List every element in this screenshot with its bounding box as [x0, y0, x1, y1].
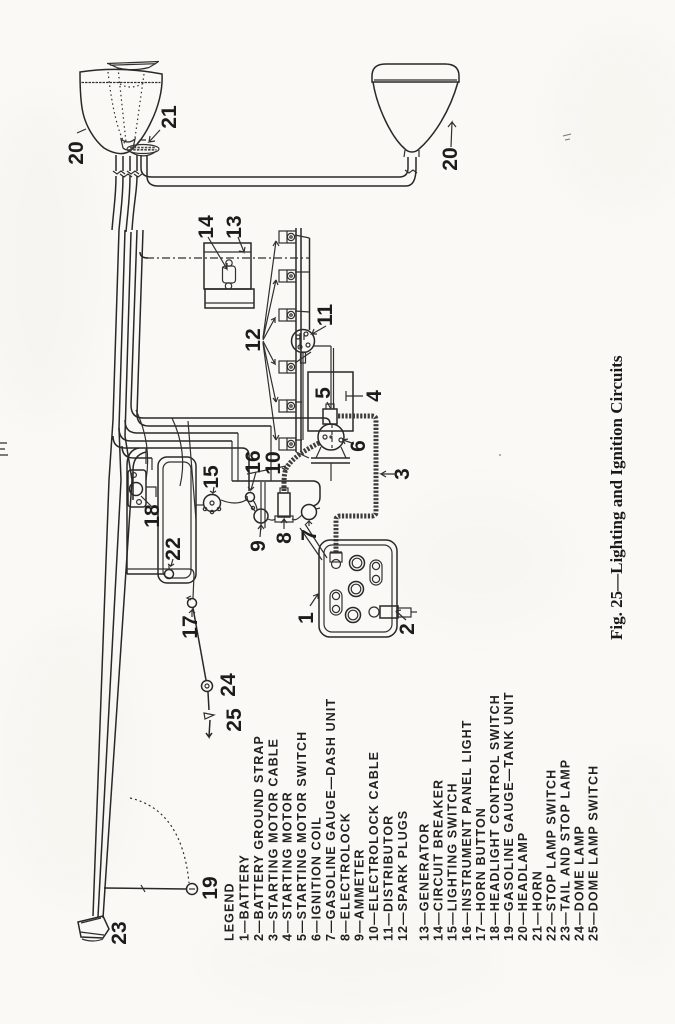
svg-text:12: 12: [242, 328, 265, 351]
svg-text:25—DOME LAMP SWITCH: 25—DOME LAMP SWITCH: [587, 765, 601, 941]
svg-text:24—DOME LAMP: 24—DOME LAMP: [573, 825, 587, 941]
svg-text:13: 13: [223, 215, 246, 238]
svg-text:LEGEND: LEGEND: [223, 882, 237, 941]
svg-text:14—CIRCUIT BREAKER: 14—CIRCUIT BREAKER: [432, 779, 446, 941]
svg-text:3—STARTING MOTOR CABLE: 3—STARTING MOTOR CABLE: [266, 738, 280, 941]
svg-text:4—STARTING MOTOR: 4—STARTING MOTOR: [281, 791, 295, 941]
svg-text:16—INSTRUMENT PANEL LIGHT: 16—INSTRUMENT PANEL LIGHT: [460, 720, 474, 942]
svg-text:5—STARTING MOTOR SWITCH: 5—STARTING MOTOR SWITCH: [295, 731, 309, 941]
svg-text:2—BATTERY GROUND STRAP: 2—BATTERY GROUND STRAP: [252, 735, 266, 941]
svg-text:6—IGNITION COIL: 6—IGNITION COIL: [310, 816, 324, 941]
svg-text:11—DISTRIBUTOR: 11—DISTRIBUTOR: [382, 815, 396, 941]
svg-text:20: 20: [439, 147, 462, 170]
svg-text:18: 18: [141, 504, 164, 528]
svg-text:9: 9: [247, 540, 270, 552]
svg-text:2: 2: [396, 623, 419, 635]
svg-text:1: 1: [295, 612, 318, 624]
svg-text:Fig. 25—Lighting and Ignition: Fig. 25—Lighting and Ignition Circuits: [607, 355, 626, 640]
svg-text:17—HORN BUTTON: 17—HORN BUTTON: [474, 807, 488, 941]
svg-text:1—BATTERY: 1—BATTERY: [238, 854, 252, 941]
svg-text:20: 20: [65, 141, 88, 164]
svg-text:8: 8: [273, 532, 296, 544]
svg-text:21—HORN: 21—HORN: [530, 870, 544, 941]
svg-text:15—LIGHTING SWITCH: 15—LIGHTING SWITCH: [446, 782, 460, 941]
svg-text:5: 5: [312, 387, 335, 399]
svg-text:7: 7: [298, 529, 321, 541]
svg-text:23—TAIL AND STOP LAMP: 23—TAIL AND STOP LAMP: [559, 759, 573, 941]
svg-text:19—GASOLINE GAUGE—TANK UNIT: 19—GASOLINE GAUGE—TANK UNIT: [502, 691, 516, 941]
svg-text:20—HEADLAMP: 20—HEADLAMP: [516, 832, 530, 941]
svg-text:22: 22: [162, 537, 185, 560]
svg-text:21: 21: [158, 105, 181, 129]
svg-text:17: 17: [179, 615, 202, 638]
svg-text:4: 4: [363, 390, 386, 402]
svg-text:19: 19: [199, 876, 222, 899]
svg-text:18—HEADLIGHT CONTROL SWITCH: 18—HEADLIGHT CONTROL SWITCH: [488, 694, 502, 941]
svg-text:10: 10: [262, 451, 285, 474]
svg-text:24: 24: [217, 673, 240, 697]
svg-text:9—AMMETER: 9—AMMETER: [353, 848, 367, 941]
svg-text:11: 11: [314, 304, 337, 327]
svg-text:15: 15: [200, 465, 223, 489]
svg-text:14: 14: [195, 215, 218, 239]
svg-text:23: 23: [108, 921, 131, 944]
svg-text:8—ELECTROLOCK: 8—ELECTROLOCK: [338, 812, 352, 941]
svg-text:22—STOP LAMP SWITCH: 22—STOP LAMP SWITCH: [544, 769, 558, 941]
svg-text:25: 25: [223, 708, 246, 732]
svg-text:7—GASOLINE GAUGE—DASH UNIT: 7—GASOLINE GAUGE—DASH UNIT: [324, 698, 338, 941]
svg-text:10—ELECTROLOCK CABLE: 10—ELECTROLOCK CABLE: [367, 751, 381, 941]
svg-text:13—GENERATOR: 13—GENERATOR: [418, 823, 432, 941]
svg-text:12—SPARK PLUGS: 12—SPARK PLUGS: [396, 810, 410, 941]
